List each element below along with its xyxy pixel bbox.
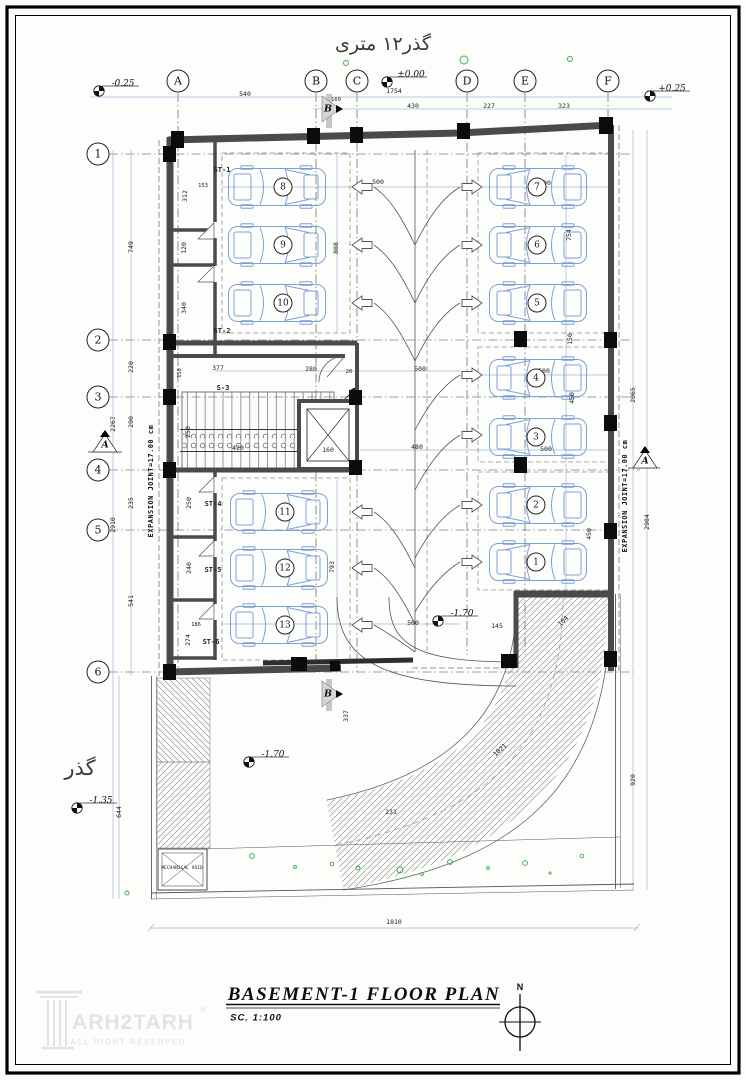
dim-label: 749 xyxy=(127,241,135,253)
elevation-label: -0.25 xyxy=(111,79,134,89)
dim-label: 235 xyxy=(127,497,135,509)
dim-label: 500 xyxy=(540,445,552,453)
dim-label: 240 xyxy=(185,562,193,574)
dim-label: 20 xyxy=(346,369,353,375)
dim-label: 290 xyxy=(127,416,135,428)
section-marker-a-left: A xyxy=(101,440,108,451)
grid-bubble-a: A xyxy=(167,70,190,93)
elevation-label: ±0.00 xyxy=(397,70,425,80)
dim-label: 480 xyxy=(411,443,423,451)
car-number: 5 xyxy=(528,294,547,313)
car-number: 2 xyxy=(527,496,546,515)
dim-label: 150 xyxy=(177,368,183,378)
drive-flow-curves xyxy=(374,150,460,652)
grid-bubble-4: 4 xyxy=(87,459,110,482)
dim-label: 500 xyxy=(372,178,384,186)
dim-label: 808 xyxy=(332,242,340,254)
logo-brand: ARH2TARH xyxy=(72,1011,194,1035)
grid-bubble-b: B xyxy=(305,70,328,93)
sheet-frame xyxy=(7,7,739,1073)
car-number: 6 xyxy=(528,236,547,255)
grid-bubble-6: 6 xyxy=(87,661,110,684)
elevation-label: +0.25 xyxy=(658,84,686,94)
logo-subtitle: ALL RIGHT RESERVED xyxy=(70,1038,186,1047)
car-number: 13 xyxy=(276,616,295,635)
dim-label: 186 xyxy=(191,622,201,628)
grid-bubble-c: C xyxy=(346,70,369,93)
car-number: 11 xyxy=(276,503,295,522)
grid-bubble-1: 1 xyxy=(87,143,110,166)
dim-label: 274 xyxy=(184,634,192,646)
car-number: 1 xyxy=(527,553,546,572)
dim-label: 541 xyxy=(127,595,135,607)
dim-label: 220 xyxy=(127,361,135,373)
dim-label: 377 xyxy=(212,364,224,372)
expansion-joint-note-left: EXPANSION JOINT=17.00 cm xyxy=(147,425,155,538)
elevation-label: -1.35 xyxy=(89,796,112,806)
elevation-label: -1.70 xyxy=(261,750,284,760)
expansion-joint-note-right: EXPANSION JOINT=17.00 cm xyxy=(621,440,629,553)
car-number: 3 xyxy=(527,428,546,447)
section-marker-b-bottom: B xyxy=(324,689,332,700)
room-label-st2: ST-2 xyxy=(214,327,231,335)
section-marker-b-top: B xyxy=(324,104,332,115)
mechanical-void-label: MECHANICAL VOID xyxy=(161,866,203,872)
dim-label: 2910 xyxy=(109,517,117,533)
car-number: 7 xyxy=(528,178,547,197)
section-marker-a-right: A xyxy=(641,456,648,467)
dim-label: 1810 xyxy=(386,918,402,926)
dim-label: 450 xyxy=(585,528,593,540)
dim-label: 312 xyxy=(181,190,189,202)
floor-plan-sheet: گذر۱۲ متری گذر A B C D E F 1 2 3 4 5 6 -… xyxy=(0,0,746,1080)
dim-label: 2984 xyxy=(643,514,651,530)
room-label-st5: ST-5 xyxy=(205,566,222,574)
dim-label: 120 xyxy=(180,242,188,254)
dim-label: 250 xyxy=(184,426,192,438)
dim-label: 2065 xyxy=(629,387,637,403)
ramp-courtyard xyxy=(151,594,634,899)
car-number: 4 xyxy=(527,369,546,388)
dim-label: 160 xyxy=(322,446,334,454)
dim-label: 250 xyxy=(185,497,193,509)
dim-label: 150 xyxy=(566,333,574,345)
dim-label: 754 xyxy=(565,229,573,241)
dim-label: 160 xyxy=(331,97,341,103)
stall-arrows xyxy=(352,180,482,632)
dim-label: 500 xyxy=(407,619,419,627)
dim-label: 153 xyxy=(198,183,208,189)
drawing-title: BASEMENT-1 FLOOR PLAN xyxy=(228,984,501,1006)
car-number: 9 xyxy=(274,236,293,255)
elevator-shaft xyxy=(299,401,357,469)
dim-label: 280 xyxy=(305,365,317,373)
dim-label: 145 xyxy=(491,622,503,630)
dim-label: 793 xyxy=(328,561,336,573)
drawing-scale: SC. 1:100 xyxy=(230,1013,282,1024)
car-number: 8 xyxy=(274,178,293,197)
grid-bubble-d: D xyxy=(456,70,479,93)
grid-bubble-3: 3 xyxy=(87,386,110,409)
logo-registered-icon: ® xyxy=(200,1006,206,1015)
dim-label: 340 xyxy=(180,302,188,314)
plan-drawing xyxy=(0,0,746,1080)
car-number: 12 xyxy=(276,559,295,578)
room-label-st1: ST-1 xyxy=(214,166,231,174)
grid-bubble-e: E xyxy=(514,70,537,93)
room-label-st6: ST-6 xyxy=(203,638,220,646)
dim-label: 231 xyxy=(385,808,397,816)
dim-label: 430 xyxy=(407,102,419,110)
north-arrow xyxy=(499,994,541,1051)
dim-label: 540 xyxy=(239,90,251,98)
dim-label: 2267 xyxy=(109,416,117,432)
dim-label: 450 xyxy=(568,392,576,404)
dim-label: 227 xyxy=(483,102,495,110)
dim-label: 1754 xyxy=(386,87,402,95)
north-label: N xyxy=(517,982,524,992)
dim-label: 420 xyxy=(232,444,244,452)
elevation-label: -1.70 xyxy=(450,609,473,619)
grid-bubble-2: 2 xyxy=(87,329,110,352)
dim-label: 920 xyxy=(629,774,637,786)
room-label-s3: S-3 xyxy=(217,384,230,392)
dim-label: 644 xyxy=(115,806,123,818)
grid-bubble-f: F xyxy=(597,70,620,93)
street-label-left: گذر xyxy=(64,756,95,780)
room-label-st4: ST-4 xyxy=(205,500,222,508)
dim-label: 323 xyxy=(558,102,570,110)
grid-bubble-5: 5 xyxy=(87,519,110,542)
street-label-top: گذر۱۲ متری xyxy=(335,33,431,55)
dim-label: 500 xyxy=(414,365,426,373)
car-number: 10 xyxy=(274,294,293,313)
dim-label: 337 xyxy=(342,710,350,722)
